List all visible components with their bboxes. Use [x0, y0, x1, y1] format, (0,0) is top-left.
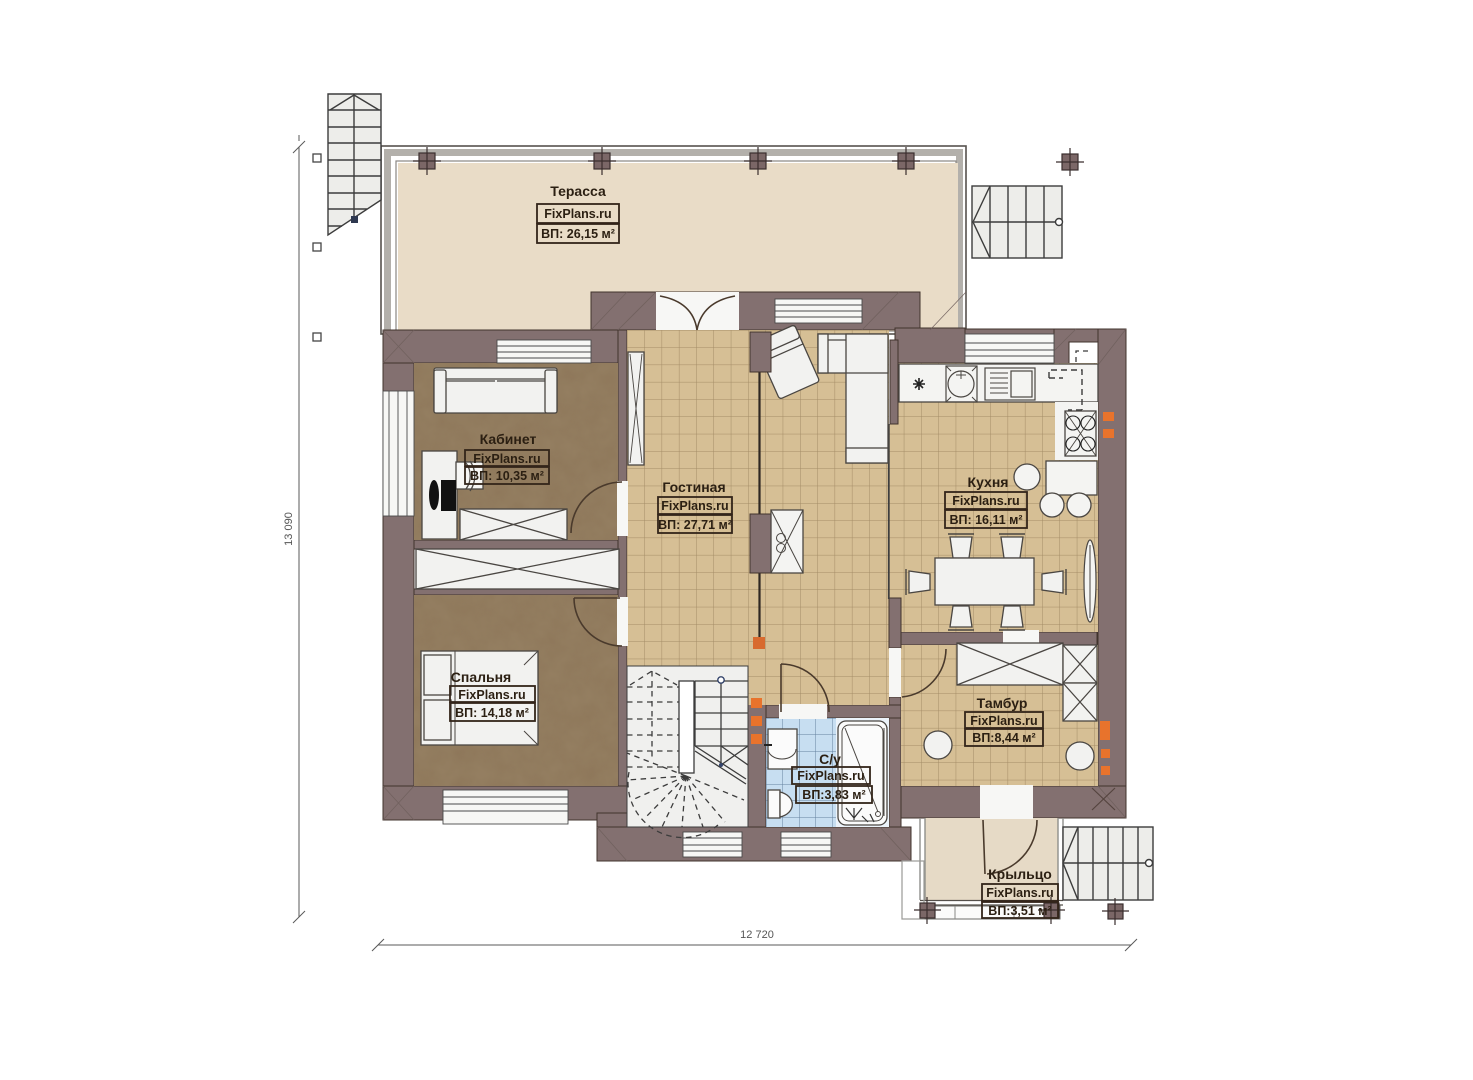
- svg-text:13 090: 13 090: [283, 512, 295, 546]
- svg-text:Кухня: Кухня: [968, 474, 1009, 490]
- svg-text:ВП: 14,18 м²: ВП: 14,18 м²: [455, 706, 529, 720]
- svg-text:ВП: 16,11 м²: ВП: 16,11 м²: [949, 513, 1022, 527]
- svg-text:12 720: 12 720: [740, 929, 774, 941]
- svg-text:FixPlans.ru: FixPlans.ru: [544, 207, 611, 221]
- svg-text:ВП:3,51 м²: ВП:3,51 м²: [988, 904, 1051, 918]
- svg-text:ВП: 27,71 м²: ВП: 27,71 м²: [658, 518, 732, 532]
- svg-text:Тамбур: Тамбур: [977, 695, 1028, 711]
- svg-text:FixPlans.ru: FixPlans.ru: [797, 769, 864, 783]
- svg-text:С/у: С/у: [819, 751, 841, 767]
- svg-text:ВП: 10,35 м²: ВП: 10,35 м²: [470, 469, 544, 483]
- svg-text:ВП:8,44 м²: ВП:8,44 м²: [972, 731, 1035, 745]
- svg-text:Кабинет: Кабинет: [480, 431, 537, 447]
- svg-text:Терасса: Терасса: [550, 183, 606, 199]
- svg-text:FixPlans.ru: FixPlans.ru: [970, 714, 1037, 728]
- svg-text:Крыльцо: Крыльцо: [988, 866, 1052, 882]
- svg-text:FixPlans.ru: FixPlans.ru: [458, 688, 525, 702]
- svg-text:FixPlans.ru: FixPlans.ru: [986, 886, 1053, 900]
- svg-text:FixPlans.ru: FixPlans.ru: [952, 494, 1019, 508]
- svg-text:ВП: 26,15 м²: ВП: 26,15 м²: [541, 227, 615, 241]
- svg-text:ВП:3,83 м²: ВП:3,83 м²: [802, 788, 865, 802]
- svg-text:FixPlans.ru: FixPlans.ru: [473, 452, 540, 466]
- svg-text:Спальня: Спальня: [451, 669, 511, 685]
- svg-text:FixPlans.ru: FixPlans.ru: [661, 499, 728, 513]
- svg-text:Гостиная: Гостиная: [662, 479, 725, 495]
